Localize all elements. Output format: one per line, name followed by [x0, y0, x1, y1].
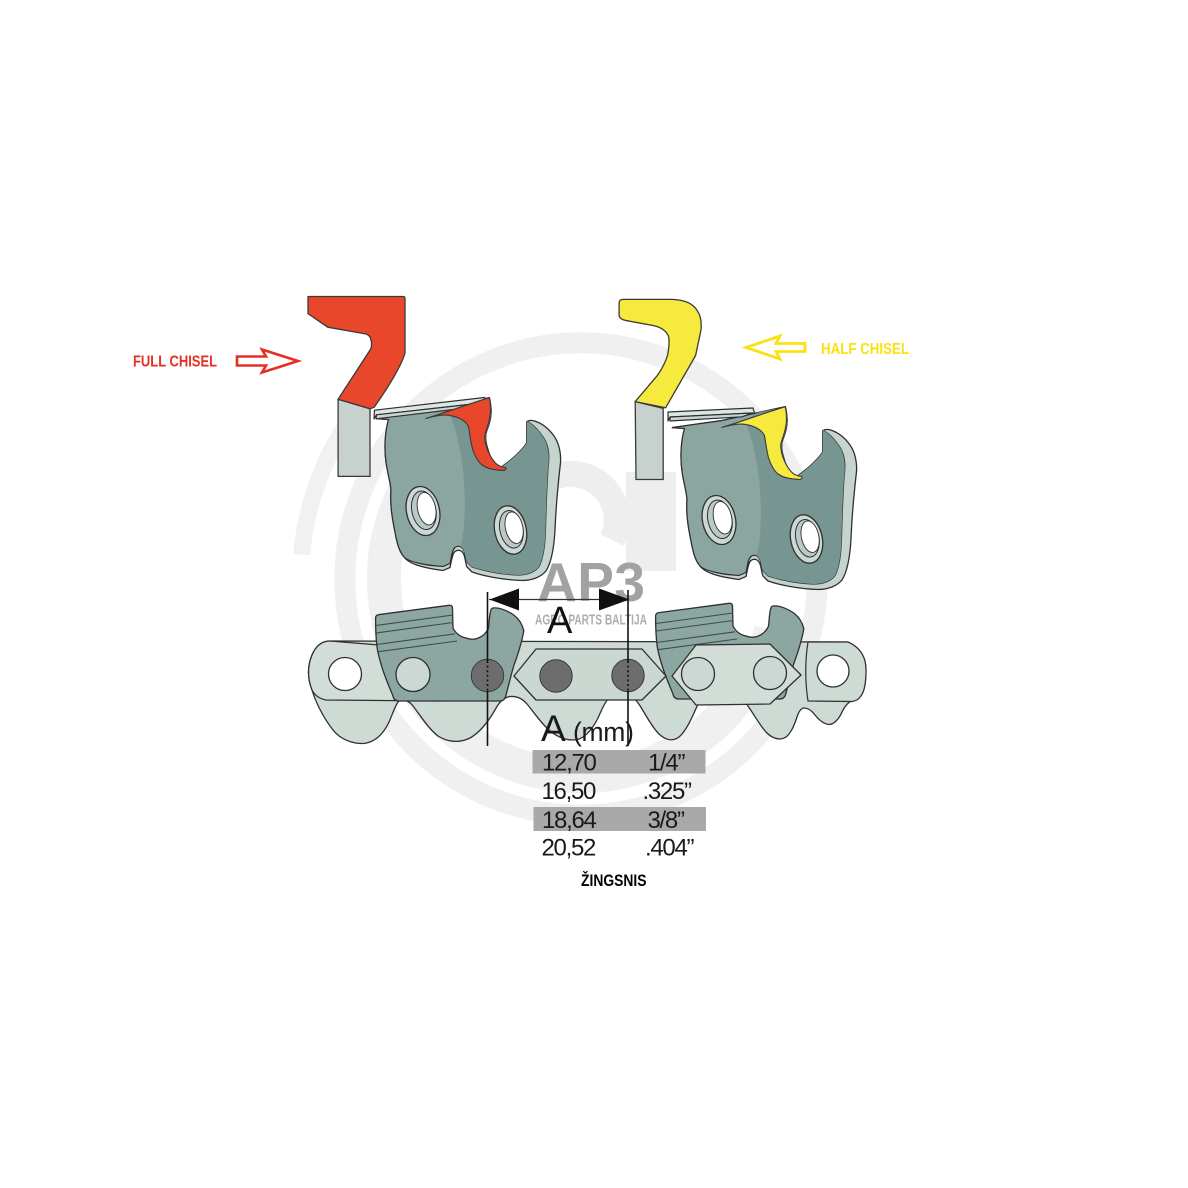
svg-text:16,50: 16,50	[542, 778, 597, 805]
svg-text:20,52: 20,52	[542, 835, 597, 862]
svg-text:18,64: 18,64	[542, 807, 597, 834]
svg-text:.404”: .404”	[645, 835, 695, 862]
svg-text:1/4”: 1/4”	[648, 750, 685, 777]
svg-text:A: A	[547, 600, 573, 642]
svg-text:HALF CHISEL: HALF CHISEL	[821, 341, 909, 358]
svg-text:A: A	[541, 708, 566, 749]
svg-text:3/8”: 3/8”	[648, 807, 685, 834]
svg-text:.325”: .325”	[643, 778, 693, 805]
svg-text:(mm): (mm)	[573, 717, 634, 747]
svg-text:FULL CHISEL: FULL CHISEL	[133, 354, 217, 371]
svg-text:12,70: 12,70	[542, 750, 597, 777]
svg-text:ŽINGSNIS: ŽINGSNIS	[581, 871, 647, 890]
